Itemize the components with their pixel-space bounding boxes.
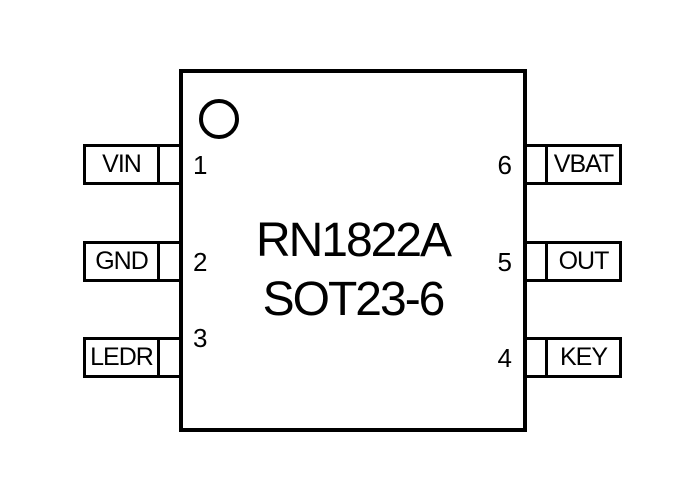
pin-number-6: 6 [480, 152, 512, 178]
chip-title: RN1822A SOT23-6 [179, 211, 527, 329]
pin-label-ledr: LEDR [83, 337, 160, 378]
pin-number-3: 3 [193, 325, 225, 351]
pin-number-4: 4 [480, 345, 512, 371]
pin-number-5: 5 [480, 249, 512, 275]
pinout-diagram: VIN GND LEDR VBAT OUT KEY RN1822A SOT23-… [0, 0, 698, 484]
pin-stub-3 [157, 337, 181, 378]
pin-label-vbat: VBAT [545, 144, 622, 185]
pin-label-out-text: OUT [559, 247, 609, 276]
pin-stub-1 [157, 144, 181, 185]
pin-label-gnd: GND [83, 241, 160, 282]
part-number: RN1822A [179, 211, 527, 270]
pin-number-1: 1 [193, 152, 225, 178]
pin-label-gnd-text: GND [95, 247, 148, 276]
package-name: SOT23-6 [179, 270, 527, 329]
pin-label-out: OUT [545, 241, 622, 282]
pin-stub-2 [157, 241, 181, 282]
pin-label-vin: VIN [83, 144, 160, 185]
pin-label-vbat-text: VBAT [554, 150, 613, 179]
pin-label-key-text: KEY [560, 343, 607, 372]
pin-number-2: 2 [193, 249, 225, 275]
pin1-indicator-icon [199, 99, 239, 139]
pin-label-vin-text: VIN [102, 150, 141, 179]
pin-label-key: KEY [545, 337, 622, 378]
pin-label-ledr-text: LEDR [90, 343, 153, 372]
